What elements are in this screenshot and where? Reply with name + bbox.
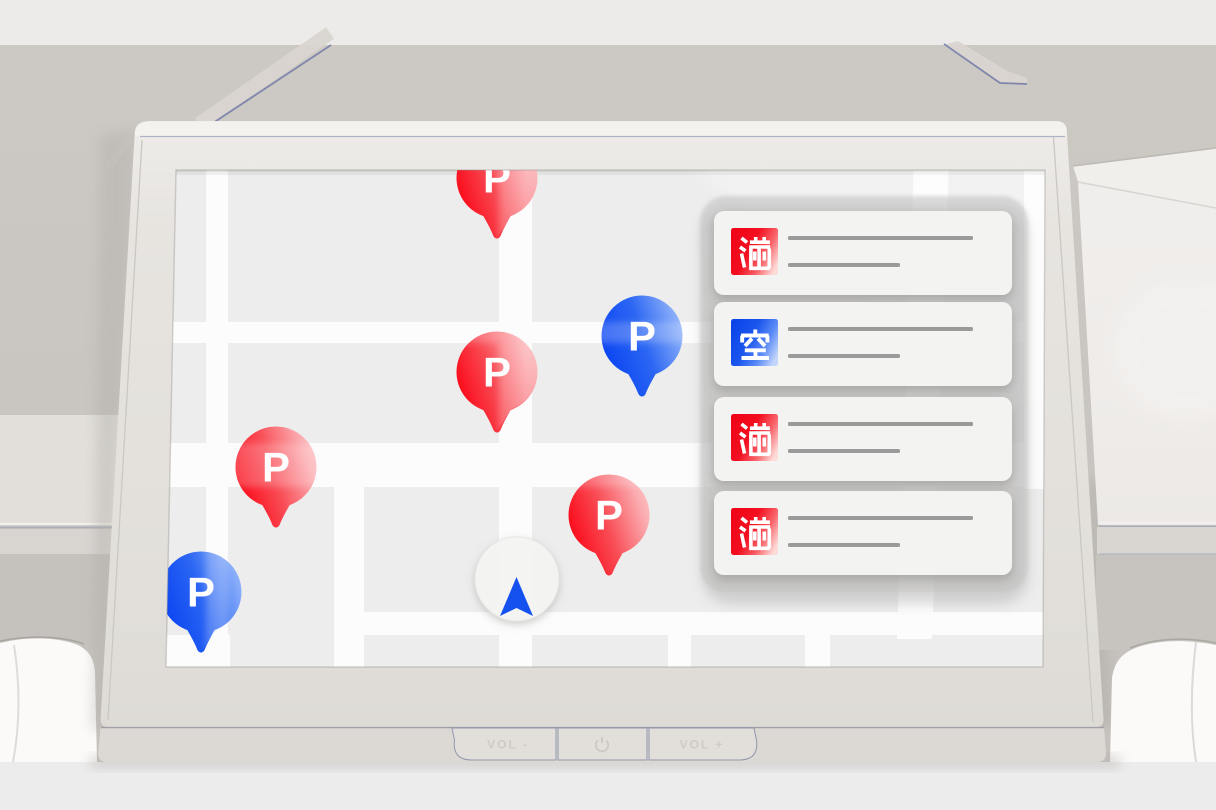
svg-text:VOL +: VOL +	[680, 738, 725, 752]
svg-text:P: P	[595, 492, 623, 539]
svg-text:VOL -: VOL -	[487, 738, 529, 752]
